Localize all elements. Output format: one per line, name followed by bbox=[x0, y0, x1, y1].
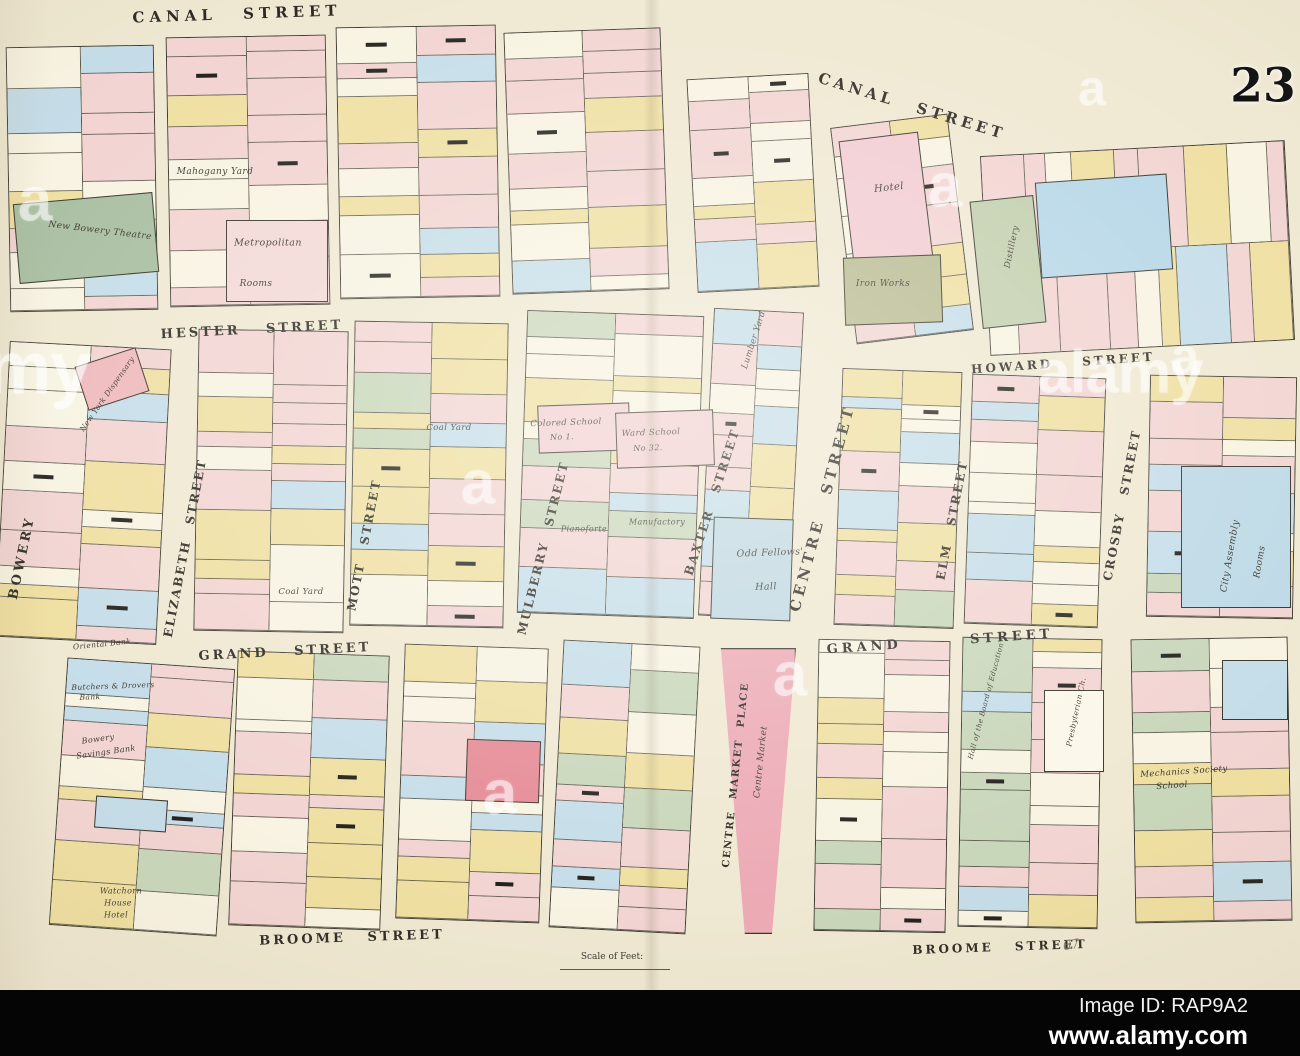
lot bbox=[312, 680, 388, 720]
building-mark bbox=[445, 38, 465, 42]
lot bbox=[817, 778, 882, 800]
lot bbox=[693, 176, 754, 206]
lot bbox=[53, 840, 138, 886]
lot bbox=[1183, 144, 1232, 245]
lot bbox=[340, 215, 419, 256]
building-mark bbox=[366, 43, 386, 47]
lot bbox=[246, 36, 325, 53]
lot bbox=[432, 323, 508, 360]
lot bbox=[338, 78, 417, 96]
lot bbox=[431, 359, 507, 395]
lot bbox=[1223, 377, 1296, 419]
lot bbox=[198, 431, 272, 448]
lot bbox=[271, 464, 345, 483]
building-label: Hotel bbox=[104, 911, 128, 920]
lot bbox=[236, 677, 312, 722]
lot bbox=[623, 788, 692, 832]
city-block bbox=[686, 73, 819, 293]
lot bbox=[1039, 377, 1105, 398]
map-paper: CANAL STREETCANAL STREETHESTER STREETHOW… bbox=[0, 0, 1300, 1056]
lot bbox=[421, 276, 500, 297]
lot bbox=[427, 580, 503, 607]
building-mark bbox=[986, 779, 1004, 783]
building-mark bbox=[1242, 879, 1262, 883]
lot bbox=[881, 839, 946, 889]
lot bbox=[883, 732, 948, 753]
lot bbox=[818, 724, 883, 745]
building-label: Ward School bbox=[621, 427, 680, 439]
building-mark bbox=[277, 161, 297, 165]
lot bbox=[249, 184, 328, 221]
lot bbox=[248, 142, 327, 186]
lot bbox=[233, 794, 308, 819]
lot bbox=[755, 369, 799, 391]
lot bbox=[819, 653, 884, 699]
lot bbox=[400, 776, 471, 802]
alamy-url: www.alamy.com bbox=[1049, 1019, 1248, 1052]
lot bbox=[0, 597, 77, 640]
lot bbox=[585, 96, 663, 133]
lot bbox=[195, 559, 269, 580]
lot bbox=[610, 464, 698, 496]
building-mark bbox=[456, 561, 476, 565]
lot bbox=[631, 644, 699, 673]
lot bbox=[9, 153, 82, 192]
lot bbox=[306, 843, 382, 879]
building-mark bbox=[774, 158, 790, 163]
lot bbox=[232, 816, 308, 854]
lot bbox=[469, 872, 540, 899]
lot bbox=[340, 196, 419, 216]
lot bbox=[960, 790, 1029, 842]
lot bbox=[815, 864, 880, 910]
building-mark bbox=[111, 518, 132, 523]
lot bbox=[880, 887, 945, 910]
lot bbox=[971, 420, 1037, 444]
lot bbox=[586, 131, 664, 172]
lot bbox=[969, 473, 1035, 504]
lot bbox=[1227, 142, 1272, 242]
lot bbox=[1150, 438, 1222, 465]
building-label: No 32. bbox=[633, 443, 663, 453]
lot bbox=[353, 449, 429, 489]
lot bbox=[246, 51, 325, 78]
lot bbox=[509, 152, 587, 190]
lot bbox=[1030, 773, 1099, 807]
plate-number: 23 bbox=[1230, 59, 1295, 114]
lot bbox=[399, 799, 471, 842]
lot bbox=[1036, 430, 1103, 477]
street-label: BROOME STREET bbox=[259, 927, 445, 948]
lot bbox=[429, 479, 505, 515]
lot bbox=[512, 259, 590, 294]
lot bbox=[11, 288, 84, 312]
building-hotel bbox=[838, 132, 933, 269]
lot bbox=[587, 169, 665, 207]
lot bbox=[167, 37, 246, 57]
lot bbox=[305, 908, 380, 929]
lot bbox=[629, 670, 698, 716]
lot bbox=[148, 677, 233, 718]
lot bbox=[818, 698, 883, 726]
lot bbox=[1213, 861, 1291, 902]
lot bbox=[396, 880, 468, 920]
lot bbox=[430, 394, 506, 425]
building-ward-school bbox=[615, 409, 715, 468]
lot bbox=[1133, 712, 1210, 733]
lot bbox=[753, 406, 798, 446]
building-bowery-blue-lot bbox=[94, 796, 168, 833]
building-mark bbox=[172, 816, 194, 821]
lot bbox=[749, 90, 810, 124]
lot bbox=[965, 580, 1032, 625]
lot bbox=[81, 73, 154, 114]
building-metropolitan-rooms bbox=[226, 220, 328, 302]
building-mark bbox=[862, 469, 877, 474]
building-label: Coal Yard bbox=[426, 423, 471, 433]
lot bbox=[77, 588, 158, 630]
building-label: Metropolitan bbox=[234, 238, 302, 249]
lot bbox=[835, 594, 894, 625]
city-block bbox=[193, 329, 348, 634]
lot bbox=[1035, 475, 1102, 513]
building-label: Pianoforte bbox=[561, 525, 607, 534]
lot bbox=[1032, 652, 1101, 670]
city-block bbox=[336, 25, 501, 300]
lot bbox=[229, 882, 305, 927]
lot bbox=[428, 546, 504, 582]
lot bbox=[884, 675, 949, 712]
building-mark bbox=[713, 151, 729, 156]
lot bbox=[1038, 396, 1105, 433]
lot bbox=[507, 112, 585, 154]
lot bbox=[814, 909, 879, 931]
lot-strip bbox=[396, 645, 476, 920]
lot bbox=[429, 447, 505, 481]
lot bbox=[1, 490, 82, 533]
lot bbox=[618, 907, 686, 933]
lot bbox=[972, 402, 1038, 423]
building-label: Bank bbox=[79, 692, 100, 702]
building-iron-works bbox=[843, 254, 943, 325]
lot bbox=[511, 223, 589, 262]
lot bbox=[401, 721, 473, 778]
lot bbox=[1032, 584, 1098, 606]
lot-strip bbox=[426, 323, 508, 627]
building-label: Manufactory bbox=[629, 518, 685, 527]
lot bbox=[962, 691, 1031, 713]
lot bbox=[900, 432, 960, 465]
lot bbox=[231, 852, 307, 885]
lot bbox=[526, 354, 614, 381]
lot bbox=[271, 481, 345, 510]
building-mark bbox=[495, 882, 513, 887]
city-block bbox=[349, 321, 508, 629]
building-label: Iron Works bbox=[856, 279, 910, 289]
lot bbox=[582, 28, 660, 52]
lot bbox=[757, 242, 819, 289]
lot bbox=[82, 134, 155, 182]
building-label: Coal Yard bbox=[278, 587, 323, 597]
building-mark bbox=[370, 274, 390, 278]
lot bbox=[614, 334, 702, 379]
lot bbox=[81, 113, 154, 135]
lot bbox=[756, 345, 801, 371]
lot bbox=[420, 254, 499, 278]
lot bbox=[561, 684, 630, 721]
building-label: Hall bbox=[755, 581, 777, 593]
lot bbox=[559, 717, 628, 757]
lot-strip bbox=[688, 77, 759, 292]
lot bbox=[475, 681, 547, 724]
building-red-lots bbox=[465, 739, 541, 804]
lot bbox=[688, 77, 749, 102]
lot-strip bbox=[415, 26, 499, 297]
stock-photo-canvas: CANAL STREETCANAL STREETHESTER STREETHOW… bbox=[0, 0, 1300, 1056]
building-mark bbox=[455, 614, 475, 618]
building-mark bbox=[840, 817, 857, 821]
lot bbox=[6, 388, 87, 430]
building-mark bbox=[337, 775, 356, 780]
lot bbox=[196, 510, 270, 561]
lot bbox=[305, 876, 381, 910]
lot bbox=[627, 712, 696, 757]
lot bbox=[273, 385, 347, 404]
building-crosby-blue-lot bbox=[1222, 660, 1288, 720]
building-odd-fellows-hall bbox=[710, 517, 794, 622]
lot bbox=[550, 887, 619, 929]
lot bbox=[751, 139, 813, 182]
lot-strip bbox=[814, 640, 884, 931]
building-mark bbox=[381, 466, 401, 470]
pencil-annotation: 67 bbox=[1062, 937, 1081, 955]
building-mark bbox=[536, 130, 556, 135]
building-mark bbox=[336, 824, 355, 829]
lot bbox=[354, 412, 430, 429]
city-block bbox=[228, 650, 390, 930]
lot bbox=[1134, 784, 1212, 831]
lot bbox=[958, 911, 1027, 927]
alamy-bar-text: Image ID: RAP9A2 www.alamy.com bbox=[1049, 994, 1300, 1052]
building-mark bbox=[577, 876, 595, 881]
building-label: Watchorn bbox=[100, 887, 142, 896]
lot bbox=[557, 754, 625, 788]
lot bbox=[269, 602, 343, 632]
lot bbox=[1132, 639, 1210, 673]
lot bbox=[196, 470, 270, 511]
building-mark bbox=[1058, 684, 1076, 688]
lot bbox=[341, 254, 420, 298]
lot bbox=[689, 99, 750, 132]
lot bbox=[337, 63, 416, 80]
lot bbox=[621, 828, 690, 870]
lot bbox=[83, 461, 165, 514]
lot bbox=[1135, 830, 1213, 867]
lot bbox=[589, 205, 667, 249]
lot bbox=[880, 909, 945, 932]
lot bbox=[80, 46, 153, 74]
lot bbox=[606, 576, 694, 618]
lot bbox=[405, 645, 477, 684]
lot bbox=[419, 195, 498, 229]
lot bbox=[403, 696, 474, 724]
lot bbox=[583, 50, 661, 75]
lot bbox=[1176, 244, 1231, 345]
lot bbox=[198, 372, 272, 397]
lot bbox=[169, 179, 248, 210]
lot bbox=[553, 840, 621, 870]
lot bbox=[883, 712, 948, 733]
building-mark bbox=[1160, 653, 1180, 657]
building-label: Rooms bbox=[240, 279, 273, 289]
lot bbox=[816, 840, 881, 864]
lot bbox=[753, 179, 815, 224]
lot bbox=[505, 31, 583, 59]
building-mark bbox=[984, 916, 1002, 920]
lot bbox=[339, 168, 418, 197]
lot bbox=[3, 461, 84, 495]
lot bbox=[695, 217, 756, 243]
building-mark bbox=[1056, 613, 1073, 618]
building-mark bbox=[107, 606, 128, 611]
lot bbox=[146, 713, 231, 753]
building-mark bbox=[904, 918, 921, 922]
lot-strip bbox=[337, 27, 420, 298]
lot bbox=[7, 47, 80, 89]
lot-strip bbox=[581, 28, 668, 291]
lot bbox=[584, 72, 662, 99]
lot bbox=[696, 240, 758, 292]
lot bbox=[354, 372, 430, 413]
building-mark bbox=[581, 791, 599, 796]
building-mark bbox=[725, 422, 736, 427]
lot bbox=[85, 296, 158, 310]
lot bbox=[133, 890, 218, 935]
lot bbox=[959, 887, 1028, 912]
lot bbox=[1212, 796, 1290, 833]
lot bbox=[5, 426, 86, 465]
lot bbox=[416, 26, 495, 56]
lot bbox=[1136, 866, 1214, 898]
lot bbox=[195, 579, 269, 596]
lot bbox=[562, 641, 631, 688]
lot-strip bbox=[1030, 377, 1105, 627]
lot bbox=[505, 57, 583, 82]
lot bbox=[1033, 562, 1099, 586]
lot bbox=[272, 446, 346, 466]
lot bbox=[168, 126, 247, 160]
lot bbox=[839, 451, 899, 492]
lot bbox=[1249, 241, 1293, 341]
lot bbox=[902, 371, 962, 407]
lot bbox=[469, 830, 541, 874]
lot bbox=[899, 463, 958, 488]
lot bbox=[79, 544, 161, 591]
lot bbox=[355, 322, 431, 344]
lot bbox=[970, 442, 1037, 475]
lot bbox=[355, 342, 431, 374]
lot-strip bbox=[1027, 639, 1102, 928]
building-mark bbox=[770, 81, 786, 86]
lot bbox=[428, 514, 504, 547]
lot bbox=[309, 758, 385, 798]
lot-strip bbox=[304, 654, 389, 929]
lot bbox=[417, 82, 496, 130]
lot bbox=[339, 143, 418, 169]
lot bbox=[894, 590, 954, 628]
lot bbox=[247, 77, 326, 116]
lot bbox=[960, 841, 1029, 869]
lot bbox=[8, 133, 81, 154]
lot bbox=[398, 857, 469, 883]
lot bbox=[972, 375, 1038, 404]
lot bbox=[884, 660, 949, 676]
lot bbox=[625, 753, 694, 791]
lot-strip bbox=[505, 31, 591, 294]
lot-strip bbox=[965, 375, 1039, 625]
lot bbox=[272, 424, 346, 447]
lot bbox=[1028, 895, 1097, 928]
lot-strip bbox=[229, 651, 313, 926]
lot bbox=[7, 88, 80, 134]
city-block bbox=[503, 27, 669, 294]
lot bbox=[167, 56, 246, 96]
lot bbox=[1029, 825, 1098, 864]
lot bbox=[967, 514, 1034, 555]
scale-bar bbox=[560, 966, 670, 970]
building-mark bbox=[33, 474, 54, 479]
lot bbox=[1132, 671, 1210, 713]
lot bbox=[750, 444, 796, 489]
lot bbox=[272, 403, 346, 426]
lot bbox=[270, 509, 344, 546]
lot bbox=[194, 594, 268, 631]
lot bbox=[1150, 402, 1223, 440]
lot bbox=[506, 79, 584, 115]
lot bbox=[308, 808, 384, 846]
street-label: CROSBY STREET bbox=[1100, 428, 1143, 582]
lot bbox=[710, 384, 755, 415]
lot bbox=[690, 128, 752, 179]
lot bbox=[755, 389, 799, 409]
lot bbox=[427, 606, 503, 627]
building-canal-blue-building bbox=[1035, 174, 1173, 279]
lot bbox=[136, 849, 221, 896]
lot bbox=[1223, 440, 1295, 458]
lot bbox=[817, 744, 882, 779]
lot bbox=[468, 896, 539, 922]
building-mark bbox=[923, 410, 938, 415]
lot bbox=[1031, 604, 1097, 627]
city-block bbox=[813, 639, 950, 933]
lot-strip bbox=[194, 330, 273, 631]
city-block bbox=[549, 640, 701, 935]
building-mark bbox=[997, 387, 1014, 392]
lot bbox=[311, 718, 387, 761]
lot bbox=[420, 228, 499, 256]
lot bbox=[1151, 376, 1223, 403]
lot bbox=[961, 772, 1030, 791]
lot bbox=[417, 54, 496, 83]
lot bbox=[882, 752, 947, 789]
lot bbox=[554, 800, 623, 843]
building-label: Mahogany Yard bbox=[177, 167, 254, 177]
lot bbox=[85, 419, 167, 465]
lot bbox=[337, 27, 416, 64]
lot bbox=[527, 311, 615, 340]
lot bbox=[234, 774, 309, 796]
building-mark bbox=[447, 140, 467, 144]
